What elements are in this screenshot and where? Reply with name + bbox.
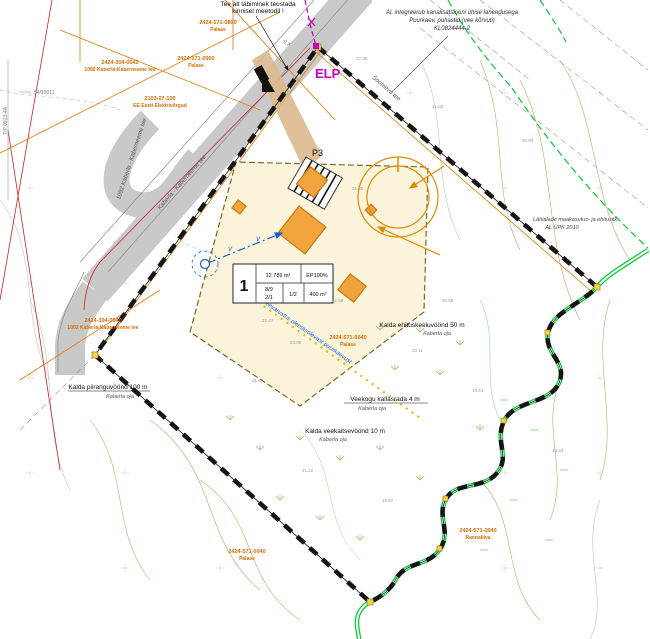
plot-r2: 2/1 bbox=[265, 295, 273, 301]
map-canvas: V V Veevarustus olemasolevast puurkaevus… bbox=[0, 0, 650, 639]
elevation: 20.93 bbox=[522, 138, 534, 143]
cadastral-label-id: 2424-571-0900 bbox=[177, 56, 214, 62]
cadastral-label-name: 1002 Kaberla-Kaberneeme tee bbox=[67, 325, 138, 331]
green-dashed-utility bbox=[448, 0, 648, 248]
plot-info-table: 1 12 789 m² EP100% 8/9 2/1 1/2 400 m² bbox=[233, 264, 333, 303]
elevation: 21.35 bbox=[352, 186, 364, 191]
elevation: 22.47 bbox=[262, 318, 274, 323]
cadastral-label-id: 2424-304-0040 bbox=[84, 318, 121, 324]
vicinity-note-line2: AL ÜPK 2010 bbox=[544, 224, 579, 231]
protection-title: Kalda piiranguvöönd 100 m bbox=[68, 384, 147, 391]
vicinity-note: Lähialade maakasutus- ja ehituslik AL ÜP… bbox=[533, 217, 617, 231]
margin-tick bbox=[8, 60, 30, 200]
cadastral-label-id: 2103-07-100 bbox=[144, 96, 175, 102]
plot-number: 1 bbox=[240, 278, 249, 295]
vicinity-note-line1: Lähialade maakasutus- ja ehituslik bbox=[533, 217, 617, 223]
plot-area: 12 789 m² bbox=[266, 273, 291, 279]
elevation: 19.87 bbox=[382, 498, 394, 503]
plot-r1: 8/9 bbox=[265, 287, 273, 293]
cadastral-label-id: 2424-571-0890 bbox=[199, 20, 236, 26]
plot-usage: EP100% bbox=[306, 273, 328, 279]
cadastral-label-id: 2424-571-0040 bbox=[459, 528, 496, 534]
elp-marker-label: ELP bbox=[315, 66, 341, 81]
elevation: 22.59 bbox=[332, 298, 344, 303]
cadastral-label-id: 2424-571-0040 bbox=[228, 549, 265, 555]
cadastral-label-id: 2424-304-0042 bbox=[101, 60, 138, 66]
elevation: 27.35 bbox=[356, 56, 368, 61]
access-note: Al. integreerub kanalisatsiooni ühise la… bbox=[385, 10, 519, 92]
protection-sub: Kaberla oja bbox=[423, 331, 451, 337]
elevation: 21.67 bbox=[252, 378, 264, 383]
elevation: 23.08 bbox=[290, 340, 302, 345]
access-note-line2: Puurkaev, puhastid (vee kõrvuti) bbox=[409, 18, 495, 24]
protection-title: Veekogu kallasrada 4 m bbox=[350, 396, 419, 403]
crossing-note-line1: Tee alt läbiminek teostada bbox=[220, 1, 296, 8]
access-note-line3: KL0824444-2 bbox=[434, 26, 471, 32]
elevation: 20.11 bbox=[412, 348, 423, 353]
protection-title: Kalda ehituskeeluvöönd 50 m bbox=[379, 322, 464, 329]
elevation: 21.22 bbox=[302, 468, 314, 473]
protection-sub: Kaberla oja bbox=[319, 437, 347, 443]
p3-parking-label: P3 bbox=[312, 148, 323, 158]
cadastral-label-name: 1092 Kaberla-Kaberneeme tee bbox=[84, 67, 155, 73]
margin-mark-horizontal: 54/15011 bbox=[34, 90, 55, 96]
protection-sub: Kaberla oja bbox=[106, 394, 134, 400]
protection-sub: Kaberla oja bbox=[358, 406, 386, 412]
detail-plan-map: V V Veevarustus olemasolevast puurkaevus… bbox=[0, 0, 650, 639]
cadastral-label-name: EE Eesti Elektrivõrgud bbox=[133, 103, 187, 109]
cadastral-label-name: Palase bbox=[210, 27, 226, 33]
cadastral-label-id: 2424-571-0040 bbox=[329, 335, 366, 341]
elevation: 21.85 bbox=[432, 104, 444, 109]
cadastral-label-name: Palase bbox=[188, 63, 204, 69]
plot-max-area: 400 m² bbox=[309, 292, 326, 298]
elevation: 19.44 bbox=[472, 388, 484, 393]
crossing-note-line2: kinnisel meetodil ! bbox=[232, 8, 284, 15]
access-note-leader bbox=[392, 36, 448, 92]
elevation: 20.56 bbox=[442, 298, 454, 303]
access-note-line1: Al. integreerub kanalisatsiooni ühise la… bbox=[385, 10, 519, 16]
cadastral-label-name: Palase bbox=[340, 342, 356, 348]
cadastral-label-name: Palase bbox=[239, 556, 255, 562]
plot-ratio: 1/2 bbox=[289, 292, 297, 298]
elevation: 18.93 bbox=[552, 448, 564, 453]
cadastral-label-name: Rannaliiva bbox=[465, 535, 490, 541]
protection-title: Kalda veekaitsevöönd 10 m bbox=[305, 428, 385, 435]
